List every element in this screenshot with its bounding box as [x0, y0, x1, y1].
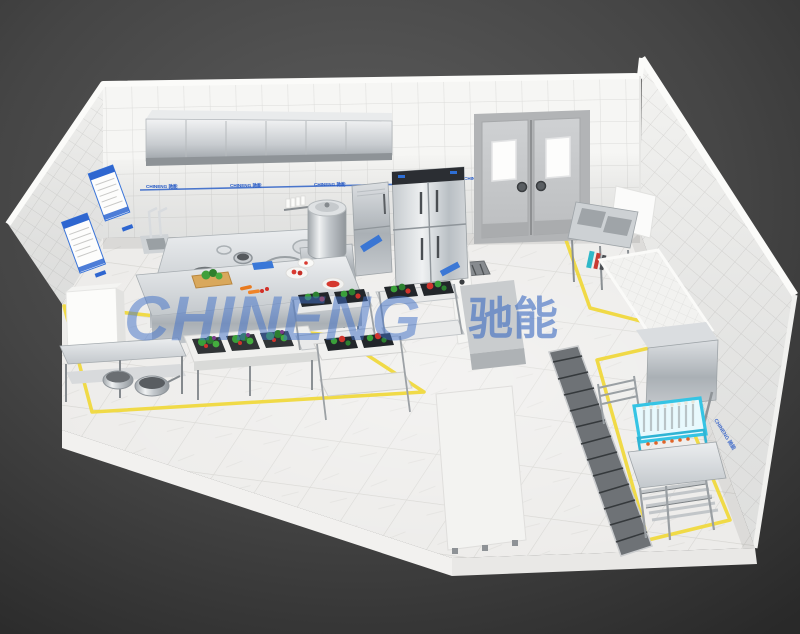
door-window-right: [546, 137, 570, 178]
fridge-brand-chip: [450, 171, 457, 174]
exhaust-hood: [146, 110, 392, 166]
steamer-cabinet: [352, 182, 392, 276]
brand-watermark: CHINENG 驰能: [124, 284, 558, 354]
door-window-left: [492, 140, 516, 181]
kitchen-scene: CHINENG 驰能 CHINENG 驰能 CHINENG 驰能 CHINENG…: [0, 0, 800, 634]
side-sink-basin: [146, 238, 167, 250]
watermark-chinese: 驰能: [468, 293, 558, 344]
service-counter: [436, 386, 526, 550]
watermark-latin: CHINENG: [124, 284, 422, 354]
commercial-kitchen-3d-render: CHINENG 驰能 CHINENG 驰能 CHINENG 驰能 CHINENG…: [0, 0, 800, 634]
four-door-refrigerator: [392, 167, 468, 291]
wall-brand-label: CHINENG 驰能: [230, 182, 262, 189]
door-handle-left: [518, 183, 527, 192]
steamer-handle: [384, 194, 385, 214]
door-handle-right: [537, 182, 546, 191]
small-pot-opening: [237, 254, 249, 261]
kettle-lid-knob: [325, 203, 330, 208]
wall-brand-label: CHINENG 驰能: [146, 183, 178, 190]
fridge-brand-chip: [398, 175, 405, 178]
dishwasher-hood-front: [646, 340, 718, 408]
wall-brand-label: CHINENG 驰能: [314, 181, 346, 188]
